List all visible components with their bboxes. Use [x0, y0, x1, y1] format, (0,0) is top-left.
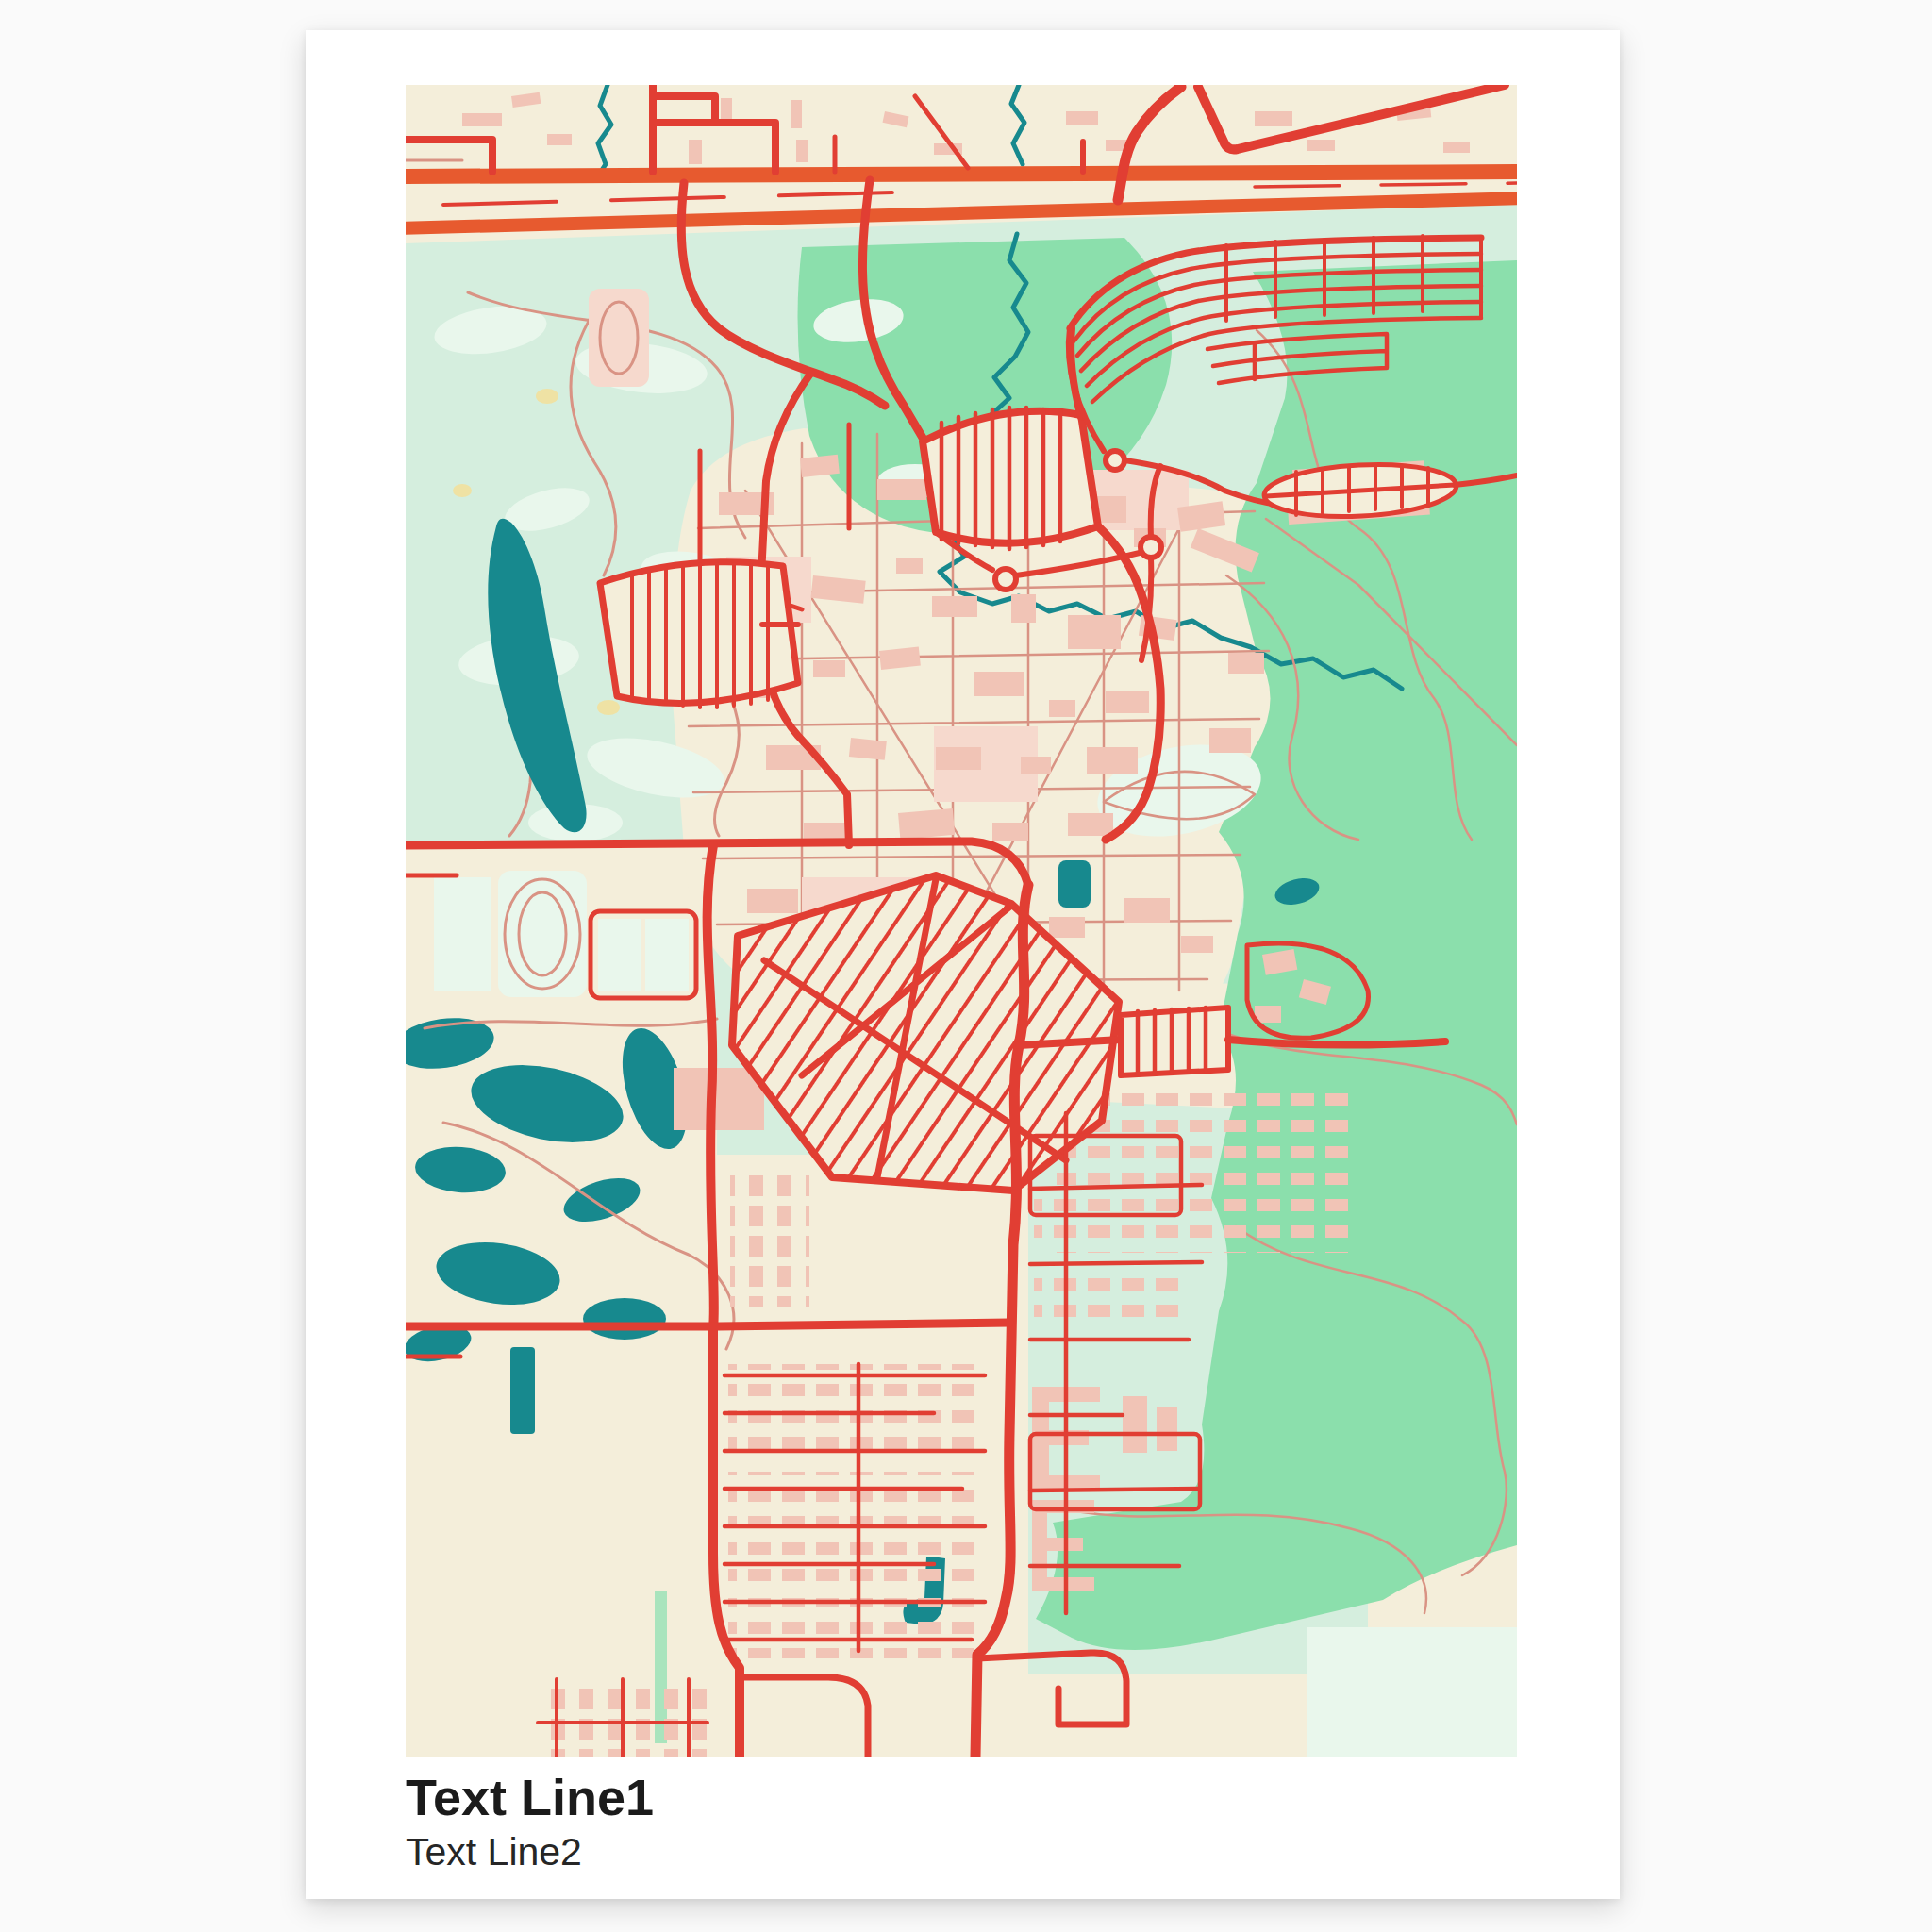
page-background: { "poster": { "title": "Text Line1", "su…: [0, 0, 1932, 1932]
poster-subtitle: Text Line2: [406, 1828, 1519, 1875]
poster-caption: Text Line1 Text Line2: [406, 1768, 1519, 1875]
poster-canvas: Text Line1 Text Line2: [306, 30, 1620, 1899]
map-artwork: [406, 85, 1517, 1757]
poster-title: Text Line1: [406, 1768, 1519, 1826]
map-frame: [406, 85, 1517, 1757]
